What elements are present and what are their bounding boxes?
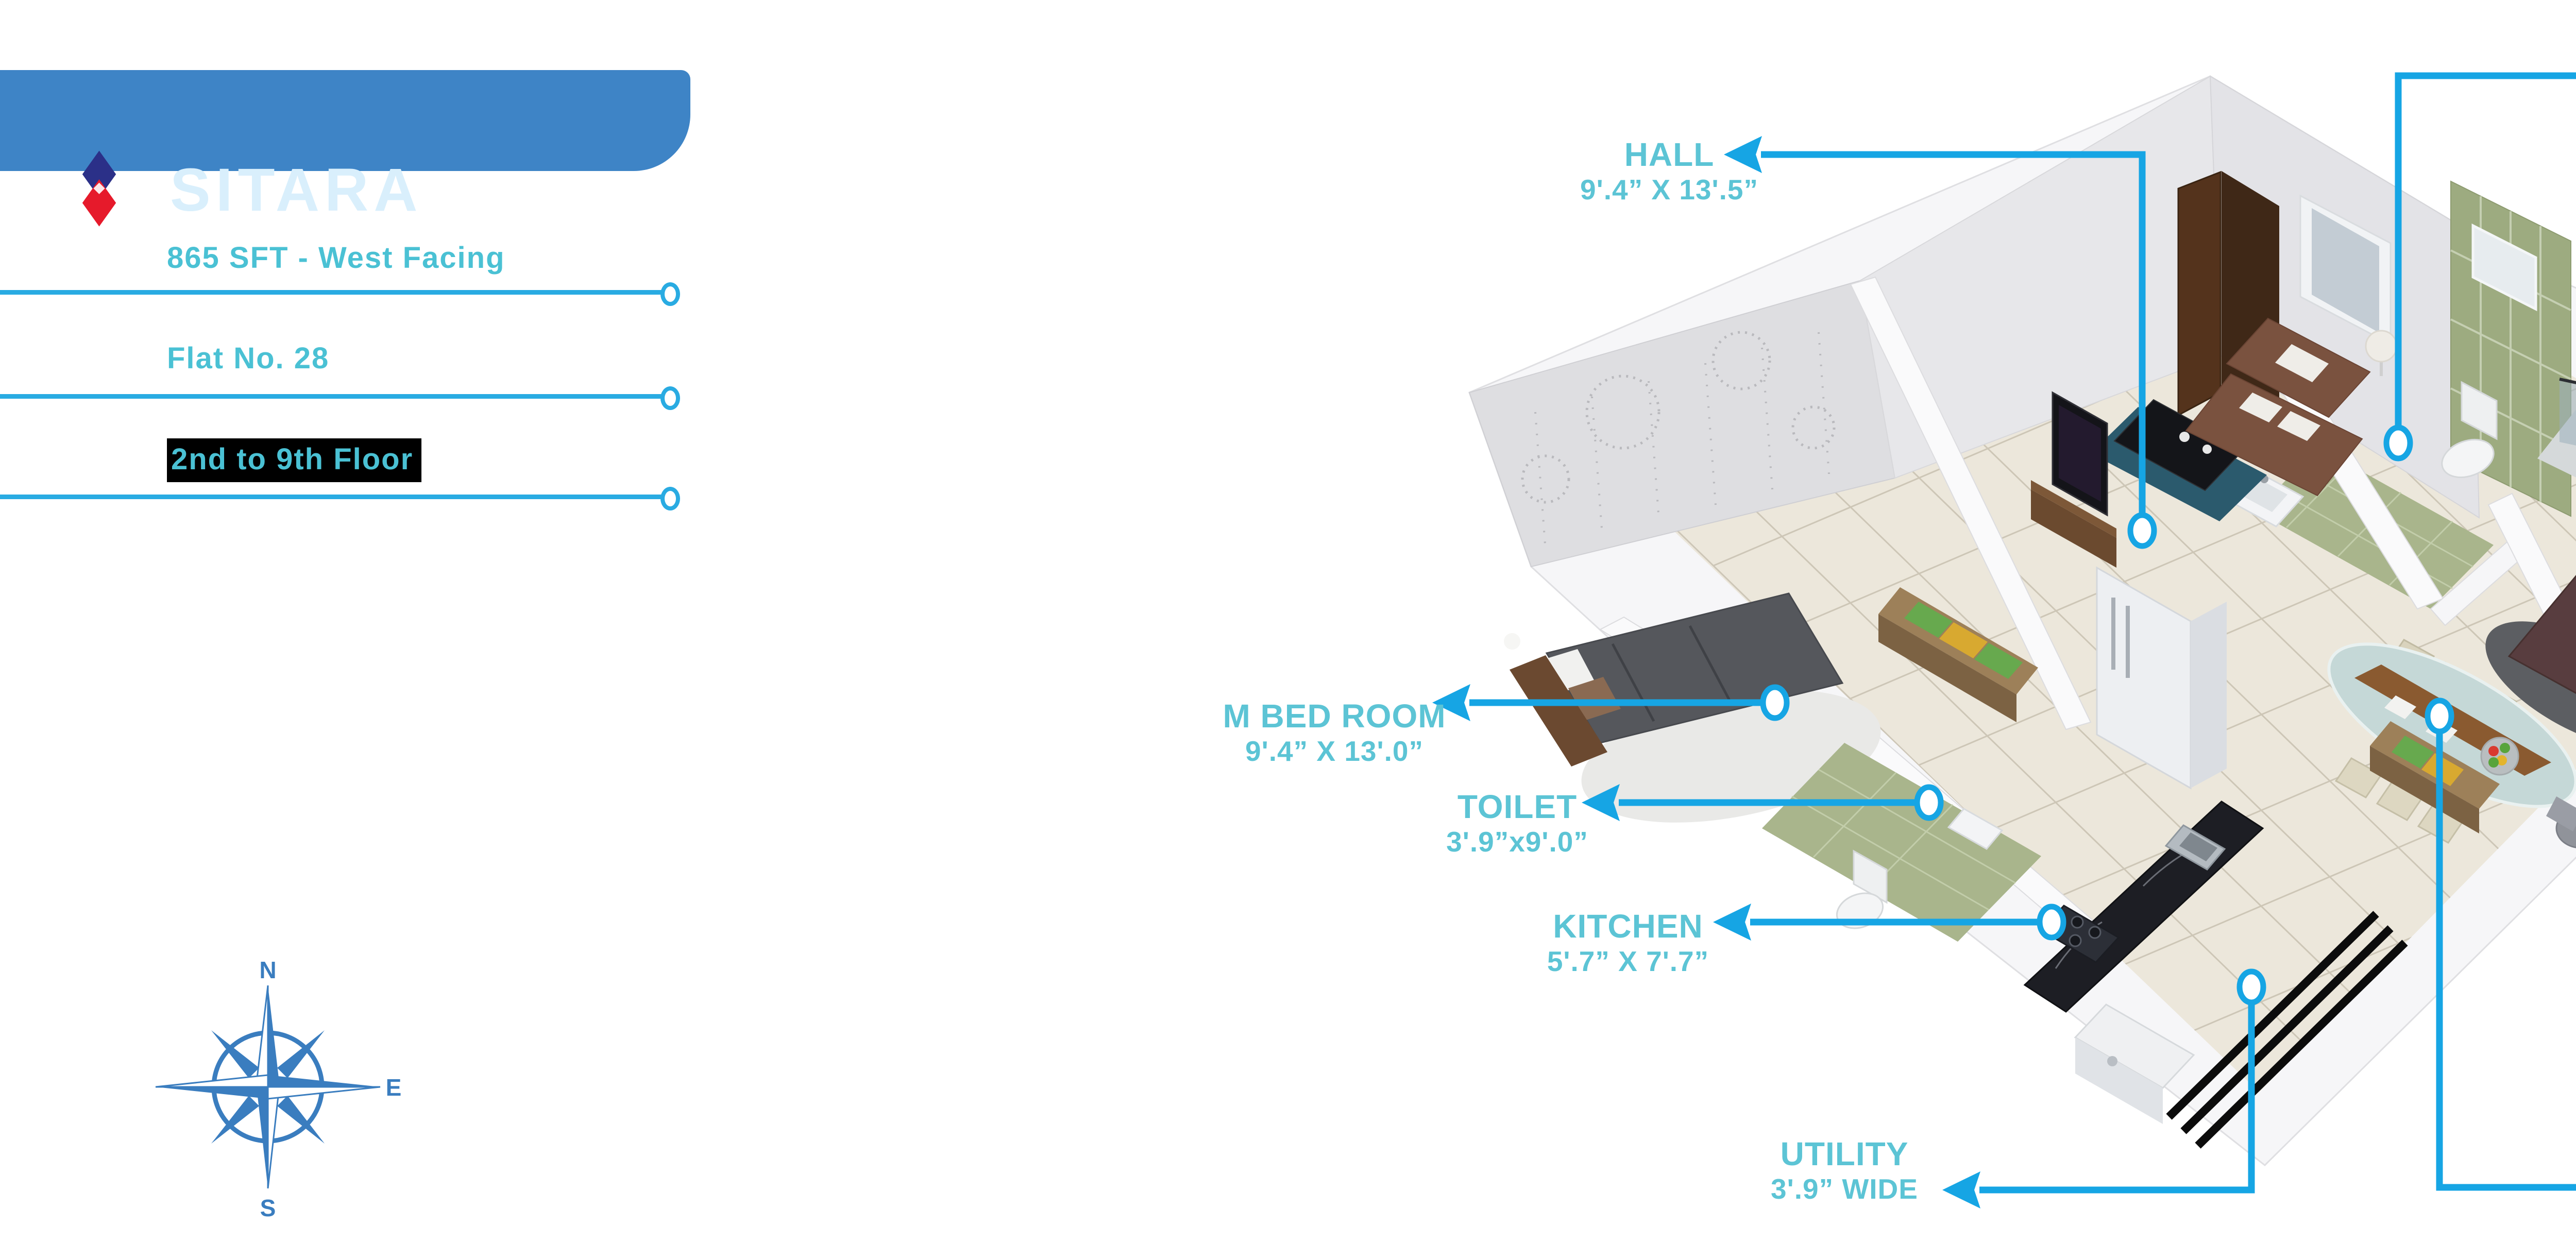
room-dims: 9'.4” X 13'.5” xyxy=(1515,173,1824,206)
room-dims: 3'.9”x9'.0” xyxy=(1363,825,1672,858)
room-dims: 5'.7” X 7'.7” xyxy=(1473,945,1783,978)
room-dims: 3'.9” WIDE xyxy=(1690,1172,1999,1205)
dot-kitchen xyxy=(2040,907,2063,938)
dot-m-bed xyxy=(1763,687,1787,718)
label-utility: UTILITY 3'.9” WIDE xyxy=(1690,1135,1999,1205)
label-toilet-bottom: TOILET 3'.9”x9'.0” xyxy=(1363,788,1672,858)
label-m-bed-room: M BED ROOM 9'.4” X 13'.0” xyxy=(1180,697,1489,768)
room-name: M BED ROOM xyxy=(1180,697,1489,735)
label-hall: HALL 9'.4” X 13'.5” xyxy=(1515,136,1824,206)
room-name: UTILITY xyxy=(1690,1135,1999,1172)
room-name: KITCHEN xyxy=(1473,908,1783,945)
dot-dining xyxy=(2428,701,2451,731)
dot-hall xyxy=(2130,515,2154,546)
dot-toilet-top xyxy=(2386,428,2410,458)
dot-toilet-bottom xyxy=(1917,787,1941,818)
room-name: HALL xyxy=(1515,136,1824,173)
dot-utility xyxy=(2240,972,2263,1002)
room-name: TOILET xyxy=(1363,788,1672,825)
label-kitchen: KITCHEN 5'.7” X 7'.7” xyxy=(1473,908,1783,978)
floor-plan-poster: SITARA 865 SFT - West Facing Flat No. 28… xyxy=(0,0,2576,1260)
floor-plan-render xyxy=(0,0,2576,1260)
room-dims: 9'.4” X 13'.0” xyxy=(1180,735,1489,768)
